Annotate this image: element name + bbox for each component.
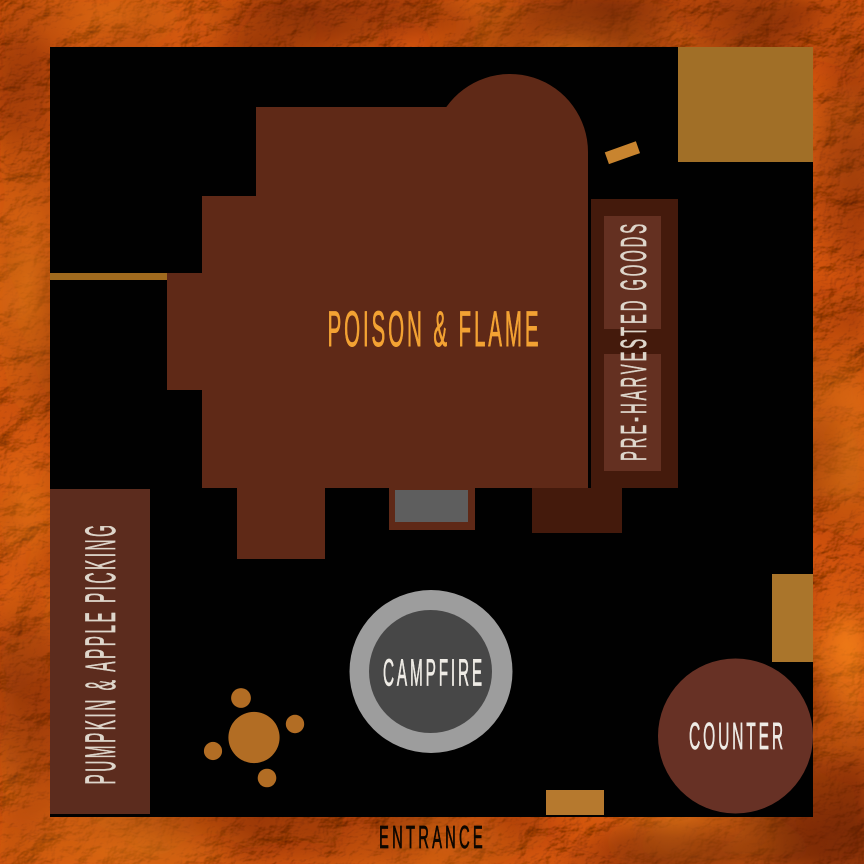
svg-text:PRE-HARVESTED GOODS: PRE-HARVESTED GOODS — [613, 221, 654, 461]
svg-text:ENTRANCE: ENTRANCE — [379, 819, 486, 855]
svg-text:COUNTER: COUNTER — [689, 716, 786, 758]
svg-text:PUMPKIN & APPLE PICKING: PUMPKIN & APPLE PICKING — [77, 523, 125, 785]
svg-text:POISON & FLAME: POISON & FLAME — [327, 301, 541, 357]
svg-text:CAMPFIRE: CAMPFIRE — [383, 652, 485, 694]
